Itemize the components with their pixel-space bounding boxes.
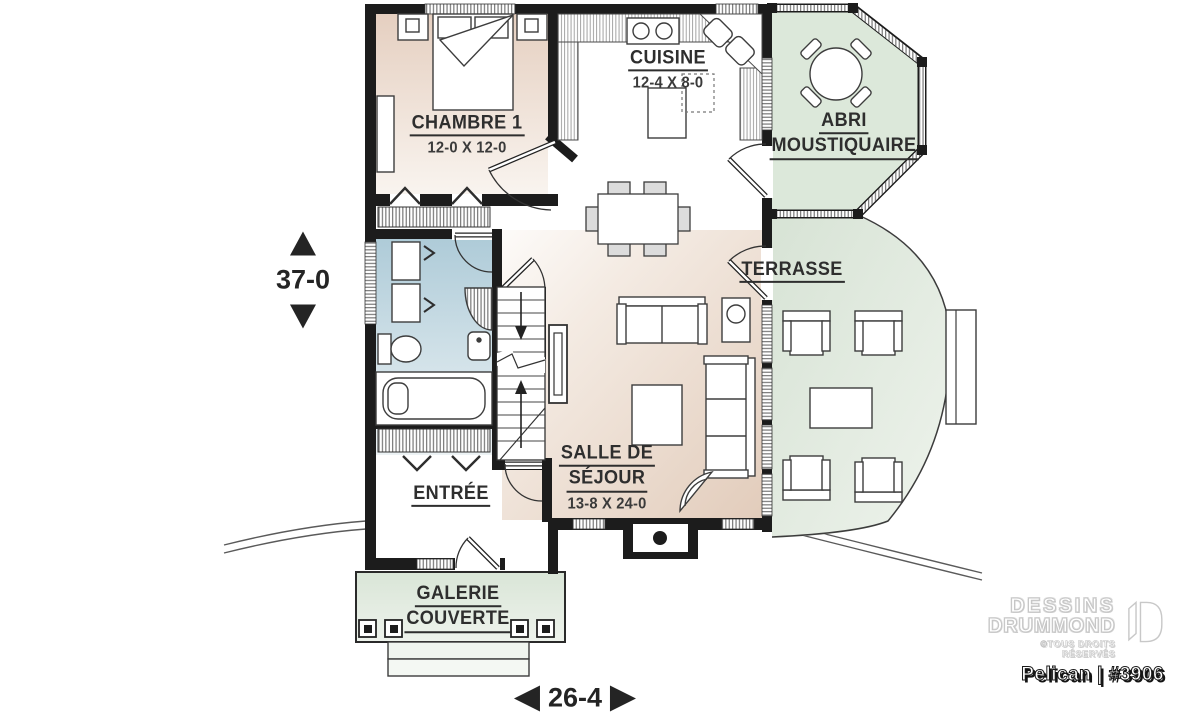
abri-furniture — [800, 38, 873, 109]
room-name: GALERIE — [415, 583, 502, 607]
kitchen-island — [648, 88, 686, 138]
room-name: MOUSTIQUAIRE — [770, 136, 919, 160]
kitchen-counter — [558, 42, 578, 140]
armchair — [783, 311, 830, 355]
depth-dimension: 37-0 — [276, 232, 330, 329]
lamp-table — [722, 298, 750, 342]
brand-name-line2: DRUMMOND — [988, 616, 1116, 636]
room-name: ABRI — [819, 110, 868, 134]
toilet — [378, 334, 421, 364]
room-name: CUISINE — [628, 47, 708, 71]
porch-column — [537, 620, 554, 637]
sofa — [704, 356, 755, 478]
nightstand — [398, 14, 428, 40]
entry-closet-rod — [378, 429, 490, 452]
kitchen-window — [716, 4, 758, 14]
room-name: ENTRÉE — [411, 483, 490, 507]
room-label-entree: ENTRÉE — [411, 483, 490, 507]
living-bottom-window — [573, 519, 605, 529]
arrow-right-icon — [610, 685, 636, 711]
living-window — [762, 368, 772, 420]
bedroom-window — [425, 4, 515, 14]
armchair — [855, 311, 902, 355]
bed — [433, 14, 513, 110]
room-label-abri: ABRI MOUSTIQUAIRE — [770, 110, 919, 160]
porch-column — [385, 620, 402, 637]
room-dims: 12-4 X 8-0 — [633, 75, 704, 93]
abri-door — [729, 144, 773, 198]
living-bottom-window — [722, 519, 754, 529]
dryer — [392, 284, 420, 322]
porch-column — [511, 620, 528, 637]
living-window — [762, 425, 772, 469]
kitchen-counter — [740, 68, 762, 140]
depth-value: 37-0 — [276, 265, 330, 296]
dresser — [377, 96, 394, 172]
terrace-planter — [946, 310, 976, 424]
room-name: TERRASSE — [739, 259, 844, 283]
brand-name-line1: DESSINS — [988, 596, 1116, 616]
bedroom-closet-rod — [378, 207, 490, 227]
entry-sidelight — [417, 559, 453, 569]
stove — [627, 18, 679, 44]
room-label-galerie: GALERIE COUVERTE — [404, 583, 511, 633]
width-value: 26-4 — [548, 683, 602, 714]
plan-id-text: Pelican | #3906 — [988, 664, 1164, 686]
room-name: COUVERTE — [404, 609, 511, 633]
loveseat — [617, 297, 707, 344]
arrow-up-icon — [290, 232, 316, 256]
bathtub — [376, 372, 492, 425]
room-dims: 13-8 X 24-0 — [567, 495, 646, 513]
dining-table — [598, 194, 678, 244]
room-dims: 12-0 X 12-0 — [427, 140, 506, 158]
room-name: CHAMBRE 1 — [410, 112, 525, 136]
arrow-left-icon — [514, 685, 540, 711]
room-label-terrasse: TERRASSE — [739, 259, 844, 283]
arrow-down-icon — [290, 305, 316, 329]
porch-column — [359, 620, 376, 637]
branding-block: DESSINS DRUMMOND ©TOUS DROITS RÉSERVÉS P… — [988, 596, 1164, 686]
width-dimension: 26-4 — [514, 683, 636, 714]
armchair — [783, 456, 830, 500]
wood-stove — [653, 531, 667, 545]
armchair — [855, 458, 902, 502]
room-label-cuisine: CUISINE 12-4 X 8-0 — [628, 47, 708, 92]
living-window — [762, 474, 772, 516]
porch-step — [388, 659, 529, 676]
living-window — [762, 305, 772, 363]
bathroom-window — [365, 242, 376, 324]
nightstand — [517, 14, 547, 40]
coffee-table — [632, 385, 682, 445]
washer — [392, 242, 420, 280]
drummond-logo-icon — [1120, 596, 1165, 648]
terrace-table — [810, 388, 872, 428]
porch-step — [388, 642, 529, 659]
room-name: SÉJOUR — [567, 468, 647, 492]
room-label-sejour: SALLE DE SÉJOUR 13-8 X 24-0 — [559, 443, 655, 514]
room-name: SALLE DE — [559, 443, 655, 467]
round-table — [810, 48, 862, 100]
front-door — [455, 538, 500, 571]
wood-stove-alcove — [623, 518, 698, 559]
floor-plan-page: CHAMBRE 1 12-0 X 12-0 CUISINE 12-4 X 8-0… — [0, 0, 1200, 711]
copyright-text: ©TOUS DROITS RÉSERVÉS — [988, 639, 1116, 659]
room-label-chambre1: CHAMBRE 1 12-0 X 12-0 — [410, 112, 525, 157]
